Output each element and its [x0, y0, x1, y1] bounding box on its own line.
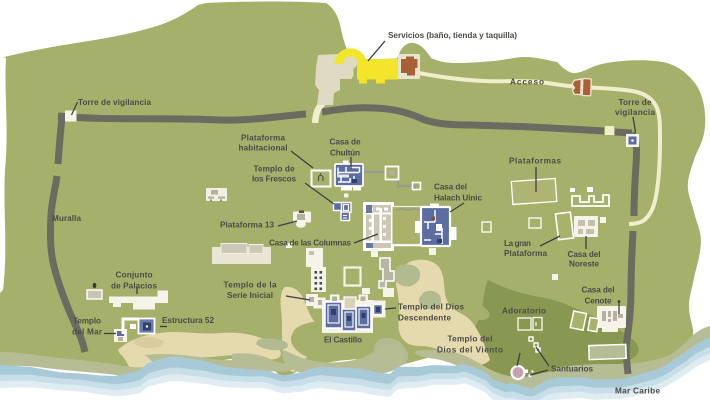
svg-text:vigilancia: vigilancia	[615, 108, 655, 117]
svg-text:Mar Caribe: Mar Caribe	[615, 387, 660, 396]
svg-text:Serie Inicial: Serie Inicial	[227, 291, 273, 300]
svg-text:Torre de: Torre de	[619, 98, 652, 107]
svg-text:La gran: La gran	[504, 239, 531, 248]
svg-text:Casa del: Casa del	[582, 286, 615, 295]
svg-text:Plataformas: Plataformas	[509, 157, 561, 166]
svg-text:Muralla: Muralla	[52, 214, 81, 223]
svg-text:Estructura 52: Estructura 52	[162, 316, 214, 325]
svg-text:Templo: Templo	[73, 317, 101, 326]
svg-text:Casa de las Columnas: Casa de las Columnas	[269, 239, 351, 248]
svg-text:Acceso: Acceso	[510, 78, 544, 87]
svg-text:Servicios (baño, tienda y taqu: Servicios (baño, tienda y taquilla)	[388, 31, 517, 40]
svg-text:Dios del Viento: Dios del Viento	[437, 346, 503, 355]
svg-text:de Palacios: de Palacios	[111, 282, 157, 291]
svg-text:El Castillo: El Castillo	[324, 336, 362, 345]
svg-text:Casa del: Casa del	[568, 250, 601, 259]
svg-text:Adoratorio: Adoratorio	[502, 307, 546, 316]
svg-text:Descendente: Descendente	[398, 314, 451, 323]
svg-text:Plataforma: Plataforma	[241, 134, 285, 143]
svg-text:Noreste: Noreste	[569, 260, 599, 269]
svg-text:Santuarios: Santuarios	[551, 365, 593, 374]
svg-text:Templo de: Templo de	[254, 165, 295, 174]
svg-text:los Frescos: los Frescos	[252, 175, 296, 184]
svg-text:Templo del Dios: Templo del Dios	[398, 303, 464, 312]
svg-text:habitacional: habitacional	[239, 144, 288, 153]
svg-text:Chultún: Chultún	[330, 149, 360, 158]
svg-text:Cenote: Cenote	[585, 297, 612, 306]
svg-text:Plataforma 13: Plataforma 13	[220, 221, 274, 230]
svg-text:Plataforma: Plataforma	[504, 249, 547, 258]
svg-text:del Mar: del Mar	[72, 328, 103, 337]
svg-text:Templo del: Templo del	[448, 335, 493, 344]
svg-text:Halach Uinic: Halach Uinic	[434, 194, 482, 203]
svg-text:Conjunto: Conjunto	[116, 271, 153, 280]
svg-text:Torre de vigilancia: Torre de vigilancia	[78, 98, 151, 107]
svg-text:Casa del: Casa del	[434, 183, 467, 192]
svg-text:Templo de la: Templo de la	[224, 281, 277, 290]
svg-text:Casa de: Casa de	[330, 138, 361, 147]
